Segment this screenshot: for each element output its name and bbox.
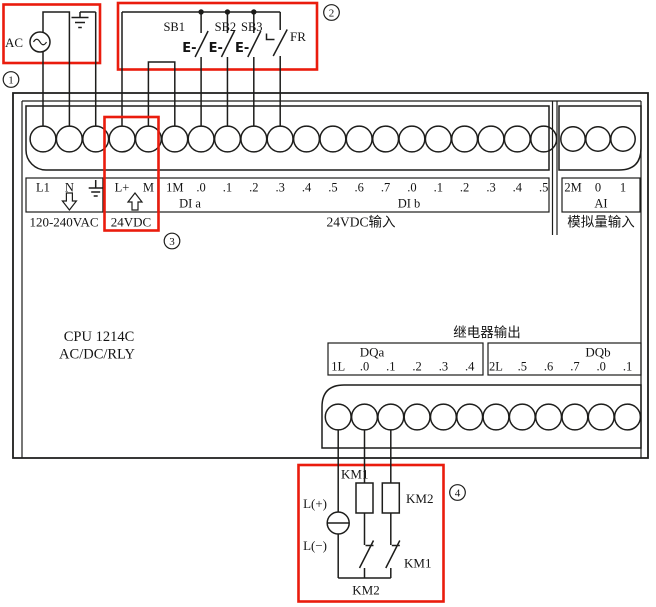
ai-terminal-strip <box>559 106 641 170</box>
ai-group-label: AI <box>594 197 607 211</box>
terminal-circle <box>404 404 430 430</box>
terminal-circle <box>562 404 588 430</box>
sine-wave-icon <box>34 39 47 45</box>
callout-3: 3 <box>169 236 175 248</box>
terminal-label: .5 <box>328 181 337 195</box>
cpu-model: CPU 1214C <box>64 329 135 345</box>
terminal-circle <box>267 126 293 152</box>
terminal-circle <box>588 404 614 430</box>
output-terminal-label: .5 <box>518 360 527 374</box>
terminal-label: .1 <box>434 181 443 195</box>
terminal-label-m: M <box>143 181 154 195</box>
cpu-label: CPU 1214C AC/DC/RLY <box>59 329 135 363</box>
output-terminal-label: .0 <box>360 360 369 374</box>
terminal-circle <box>346 126 372 152</box>
dc-caption: 24VDC <box>111 215 151 230</box>
power-caption: 120-240VAC <box>29 215 98 230</box>
output-terminal-label: .2 <box>412 360 421 374</box>
output-terminal-label: .4 <box>465 360 475 374</box>
terminal-circle <box>431 404 457 430</box>
output-terminal-label: .7 <box>570 360 579 374</box>
km2-contact-label: KM2 <box>352 583 379 598</box>
di-input-caption: 24VDC输入 <box>326 215 396 230</box>
plc-wiring-diagram-canvas: AC SB1 SB2 SB3 E- E- E- FR L1 N L+ M 1M … <box>0 0 656 607</box>
terminal-ground-icon <box>89 180 103 196</box>
cpu-type: AC/DC/RLY <box>59 347 135 363</box>
terminal-circle <box>30 126 56 152</box>
terminal-label: .5 <box>539 181 548 195</box>
fr-label: FR <box>290 29 306 44</box>
ac-source-circuit: AC <box>4 5 101 127</box>
highlight-box-load <box>299 465 444 602</box>
km1-contact-label: KM1 <box>404 556 431 571</box>
sb2-label: SB2 <box>215 20 237 34</box>
output-terminal-label: .3 <box>439 360 448 374</box>
terminal-circle <box>294 126 320 152</box>
sb3-pushbutton-icon: E- <box>235 41 249 56</box>
terminal-label: .6 <box>355 181 364 195</box>
terminal-circle <box>378 404 404 430</box>
sb2-pushbutton-icon: E- <box>209 41 223 56</box>
terminal-label: .3 <box>276 181 285 195</box>
ai-separator <box>553 101 558 235</box>
terminal-circle <box>162 126 188 152</box>
ac-source-label: AC <box>5 35 23 50</box>
output-terminal-label: .1 <box>386 360 395 374</box>
output-terminal-label: 2L <box>489 360 503 374</box>
arrow-down-icon <box>62 193 76 210</box>
input-terminal-labels: L1 N L+ M 1M .0 .1 .2 .3 .4 .5 .6 .7 .0 … <box>29 180 635 230</box>
terminal-circle <box>352 404 378 430</box>
terminal-label: .4 <box>513 181 523 195</box>
di-group-a-label: DI a <box>179 197 201 211</box>
terminal-label: .7 <box>381 181 390 195</box>
ai-input-caption: 模拟量输入 <box>567 215 635 230</box>
supply-positive-label: L(+) <box>303 496 327 511</box>
highlight-box-ac <box>4 5 101 64</box>
terminal-label-ai0: 0 <box>595 181 601 195</box>
ac-wires <box>43 12 96 126</box>
terminal-label: .2 <box>460 181 469 195</box>
terminal-circle <box>425 126 451 152</box>
terminal-circle <box>188 126 214 152</box>
highlight-box-dc <box>105 117 159 231</box>
terminal-label: .1 <box>223 181 232 195</box>
terminal-circle <box>561 127 585 151</box>
terminal-circle <box>457 404 483 430</box>
sb1-label: SB1 <box>163 20 185 34</box>
terminal-circle <box>241 126 267 152</box>
km1-nc-contact <box>386 513 400 578</box>
wiring-diagram: AC SB1 SB2 SB3 E- E- E- FR L1 N L+ M 1M … <box>0 0 656 607</box>
output-terminal-circles <box>325 404 640 430</box>
terminal-circle <box>536 404 562 430</box>
terminal-label-2m: 2M <box>564 181 581 195</box>
km2-coil-symbol <box>382 483 399 513</box>
dqa-group-label: DQa <box>360 345 385 360</box>
terminal-circle <box>478 126 504 152</box>
terminal-label: .2 <box>249 181 258 195</box>
output-terminal-strip <box>322 385 641 448</box>
dqb-group-label: DQb <box>585 345 610 360</box>
terminal-label-ai1: 1 <box>620 181 626 195</box>
output-terminal-label: .1 <box>623 360 632 374</box>
km1-coil-label: KM1 <box>341 467 368 482</box>
output-terminal-label: 1L <box>331 360 345 374</box>
terminal-label: .0 <box>407 181 416 195</box>
terminal-circle <box>325 404 351 430</box>
terminal-label: .3 <box>486 181 495 195</box>
terminal-circle <box>452 126 478 152</box>
km2-coil-label: KM2 <box>406 491 433 506</box>
km1-coil-symbol <box>356 483 373 513</box>
terminal-circle <box>399 126 425 152</box>
callout-1: 1 <box>8 74 14 86</box>
terminal-circle <box>56 126 82 152</box>
output-terminal-label: .6 <box>544 360 553 374</box>
relay-output-section: 继电器输出 DQa DQb 1L .0 .1 .2 .3 .4 2L .5 .6… <box>331 325 632 374</box>
relay-output-title: 继电器输出 <box>453 325 521 340</box>
input-terminal-circles <box>30 126 557 152</box>
ac-ground-icon <box>72 12 89 28</box>
terminal-label-l1: L1 <box>36 181 50 195</box>
terminal-circle <box>215 126 241 152</box>
callout-2: 2 <box>329 7 335 19</box>
terminal-circle <box>320 126 346 152</box>
terminal-circle <box>109 126 135 152</box>
dqb-label-box <box>488 343 641 375</box>
arrow-up-icon <box>128 193 142 210</box>
terminal-circle <box>483 404 509 430</box>
sb1-pushbutton-icon: E- <box>182 41 196 56</box>
di-group-b-label: DI b <box>398 197 421 211</box>
callout-4: 4 <box>455 487 461 499</box>
terminal-circle <box>615 404 641 430</box>
km2-nc-contact <box>360 513 374 578</box>
terminal-label-lplus: L+ <box>115 181 130 195</box>
supply-negative-label: L(−) <box>303 538 327 553</box>
dqa-label-box <box>328 343 483 375</box>
terminal-circle <box>373 126 399 152</box>
ai-terminal-circles <box>561 127 635 151</box>
sb3-label: SB3 <box>241 20 263 34</box>
highlight-box-buttons <box>118 3 317 70</box>
terminal-circle <box>586 127 610 151</box>
output-terminal-label: .0 <box>597 360 606 374</box>
callout-markers: 1 2 3 4 <box>3 5 465 501</box>
terminal-label: 1M <box>166 181 183 195</box>
terminal-circle <box>611 127 635 151</box>
terminal-circle <box>504 126 530 152</box>
contactor-load-circuit: L(+) L(−) KM1 KM2 KM1 KM2 <box>299 430 444 602</box>
terminal-label: .0 <box>196 181 205 195</box>
terminal-label: .4 <box>302 181 312 195</box>
terminal-circle <box>509 404 535 430</box>
